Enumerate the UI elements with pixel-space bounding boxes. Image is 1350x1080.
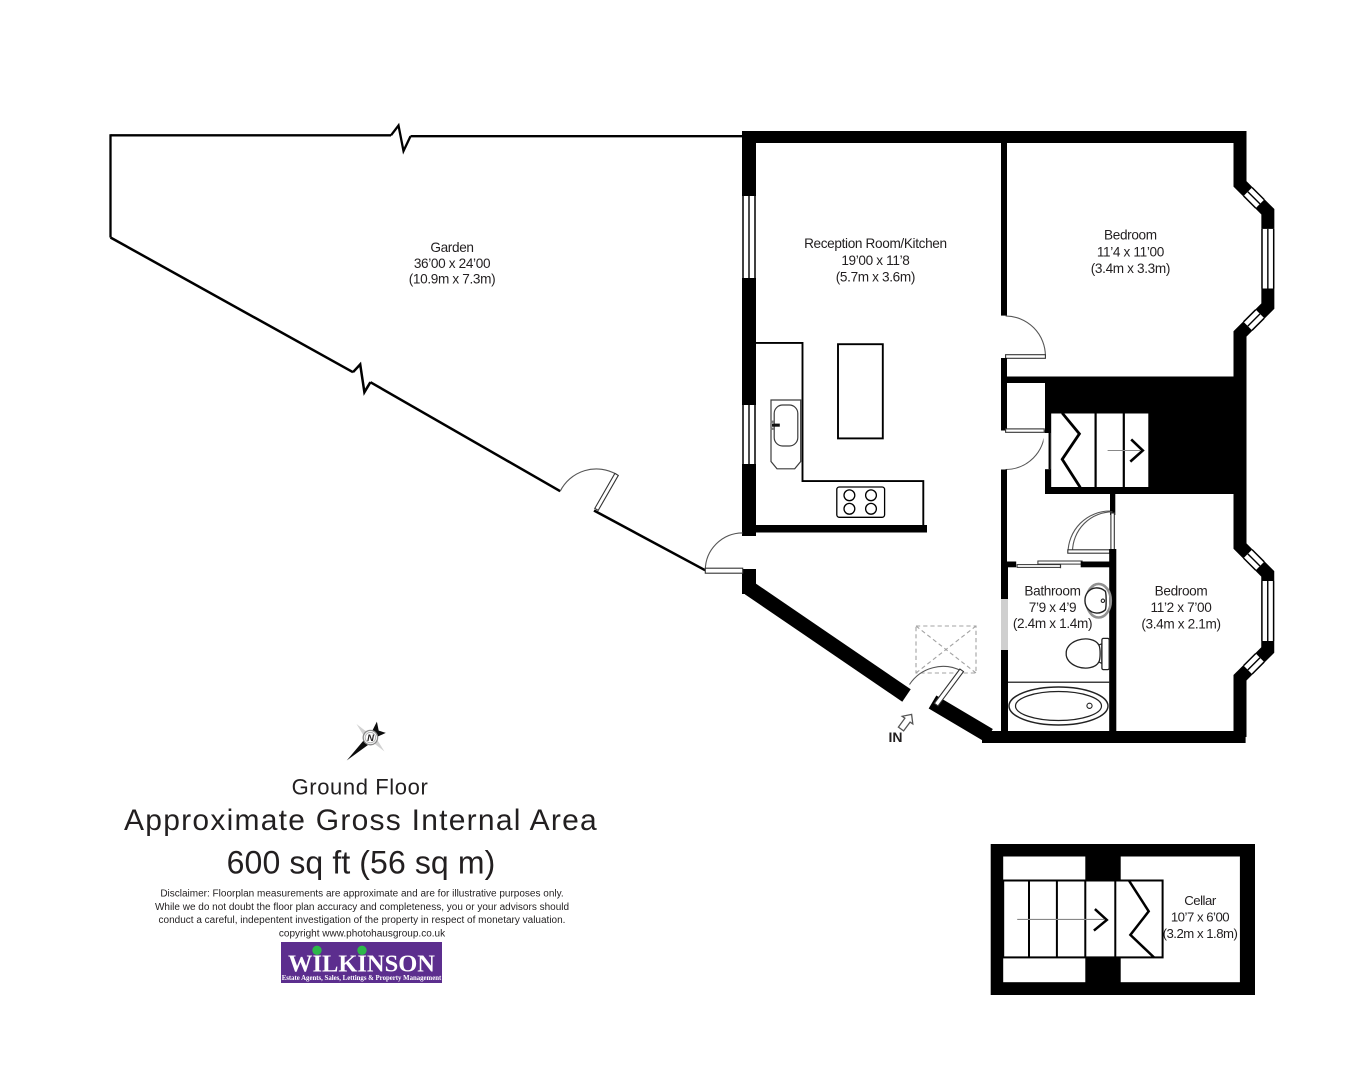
svg-text:19’00 x 11’8: 19’00 x 11’8 — [841, 253, 909, 268]
svg-text:Bedroom: Bedroom — [1155, 583, 1208, 598]
svg-text:(5.7m x 3.6m): (5.7m x 3.6m) — [836, 269, 915, 284]
svg-text:Garden: Garden — [430, 240, 473, 255]
svg-text:Ground Floor: Ground Floor — [292, 775, 429, 800]
svg-text:7’9 x 4’9: 7’9 x 4’9 — [1029, 600, 1076, 615]
svg-text:36’00 x 24’00: 36’00 x 24’00 — [414, 256, 491, 271]
svg-text:While we do not doubt the floo: While we do not doubt the floor plan acc… — [155, 902, 569, 913]
svg-text:600 sq ft (56 sq m): 600 sq ft (56 sq m) — [227, 845, 496, 881]
svg-text:conduct a careful, indepentent: conduct a careful, indepentent investiga… — [159, 915, 566, 926]
svg-text:N: N — [367, 733, 375, 744]
svg-text:Bedroom: Bedroom — [1104, 227, 1157, 242]
svg-text:Estate Agents, Sales, Lettings: Estate Agents, Sales, Lettings & Propert… — [282, 975, 442, 982]
svg-text:11’2 x 7’00: 11’2 x 7’00 — [1151, 600, 1213, 615]
svg-text:(3.4m x 3.3m): (3.4m x 3.3m) — [1091, 261, 1170, 276]
svg-text:Cellar: Cellar — [1184, 893, 1217, 908]
svg-text:copyright www.photohausgroup.c: copyright www.photohausgroup.co.uk — [279, 928, 446, 939]
svg-text:(3.4m x 2.1m): (3.4m x 2.1m) — [1141, 616, 1220, 631]
svg-text:(2.4m x 1.4m): (2.4m x 1.4m) — [1013, 616, 1092, 631]
svg-text:11’4 x 11’00: 11’4 x 11’00 — [1097, 244, 1165, 259]
svg-text:10’7 x 6’00: 10’7 x 6’00 — [1171, 909, 1229, 924]
svg-text:Approximate Gross Internal Are: Approximate Gross Internal Area — [124, 804, 598, 837]
svg-text:Reception Room/Kitchen: Reception Room/Kitchen — [804, 236, 947, 251]
svg-text:Disclaimer: Floorplan measurem: Disclaimer: Floorplan measurements are a… — [160, 889, 563, 900]
svg-text:IN: IN — [889, 729, 903, 745]
svg-text:(3.2m x 1.8m): (3.2m x 1.8m) — [1163, 926, 1238, 941]
svg-text:(10.9m x 7.3m): (10.9m x 7.3m) — [409, 271, 496, 286]
svg-text:Bathroom: Bathroom — [1024, 583, 1080, 598]
